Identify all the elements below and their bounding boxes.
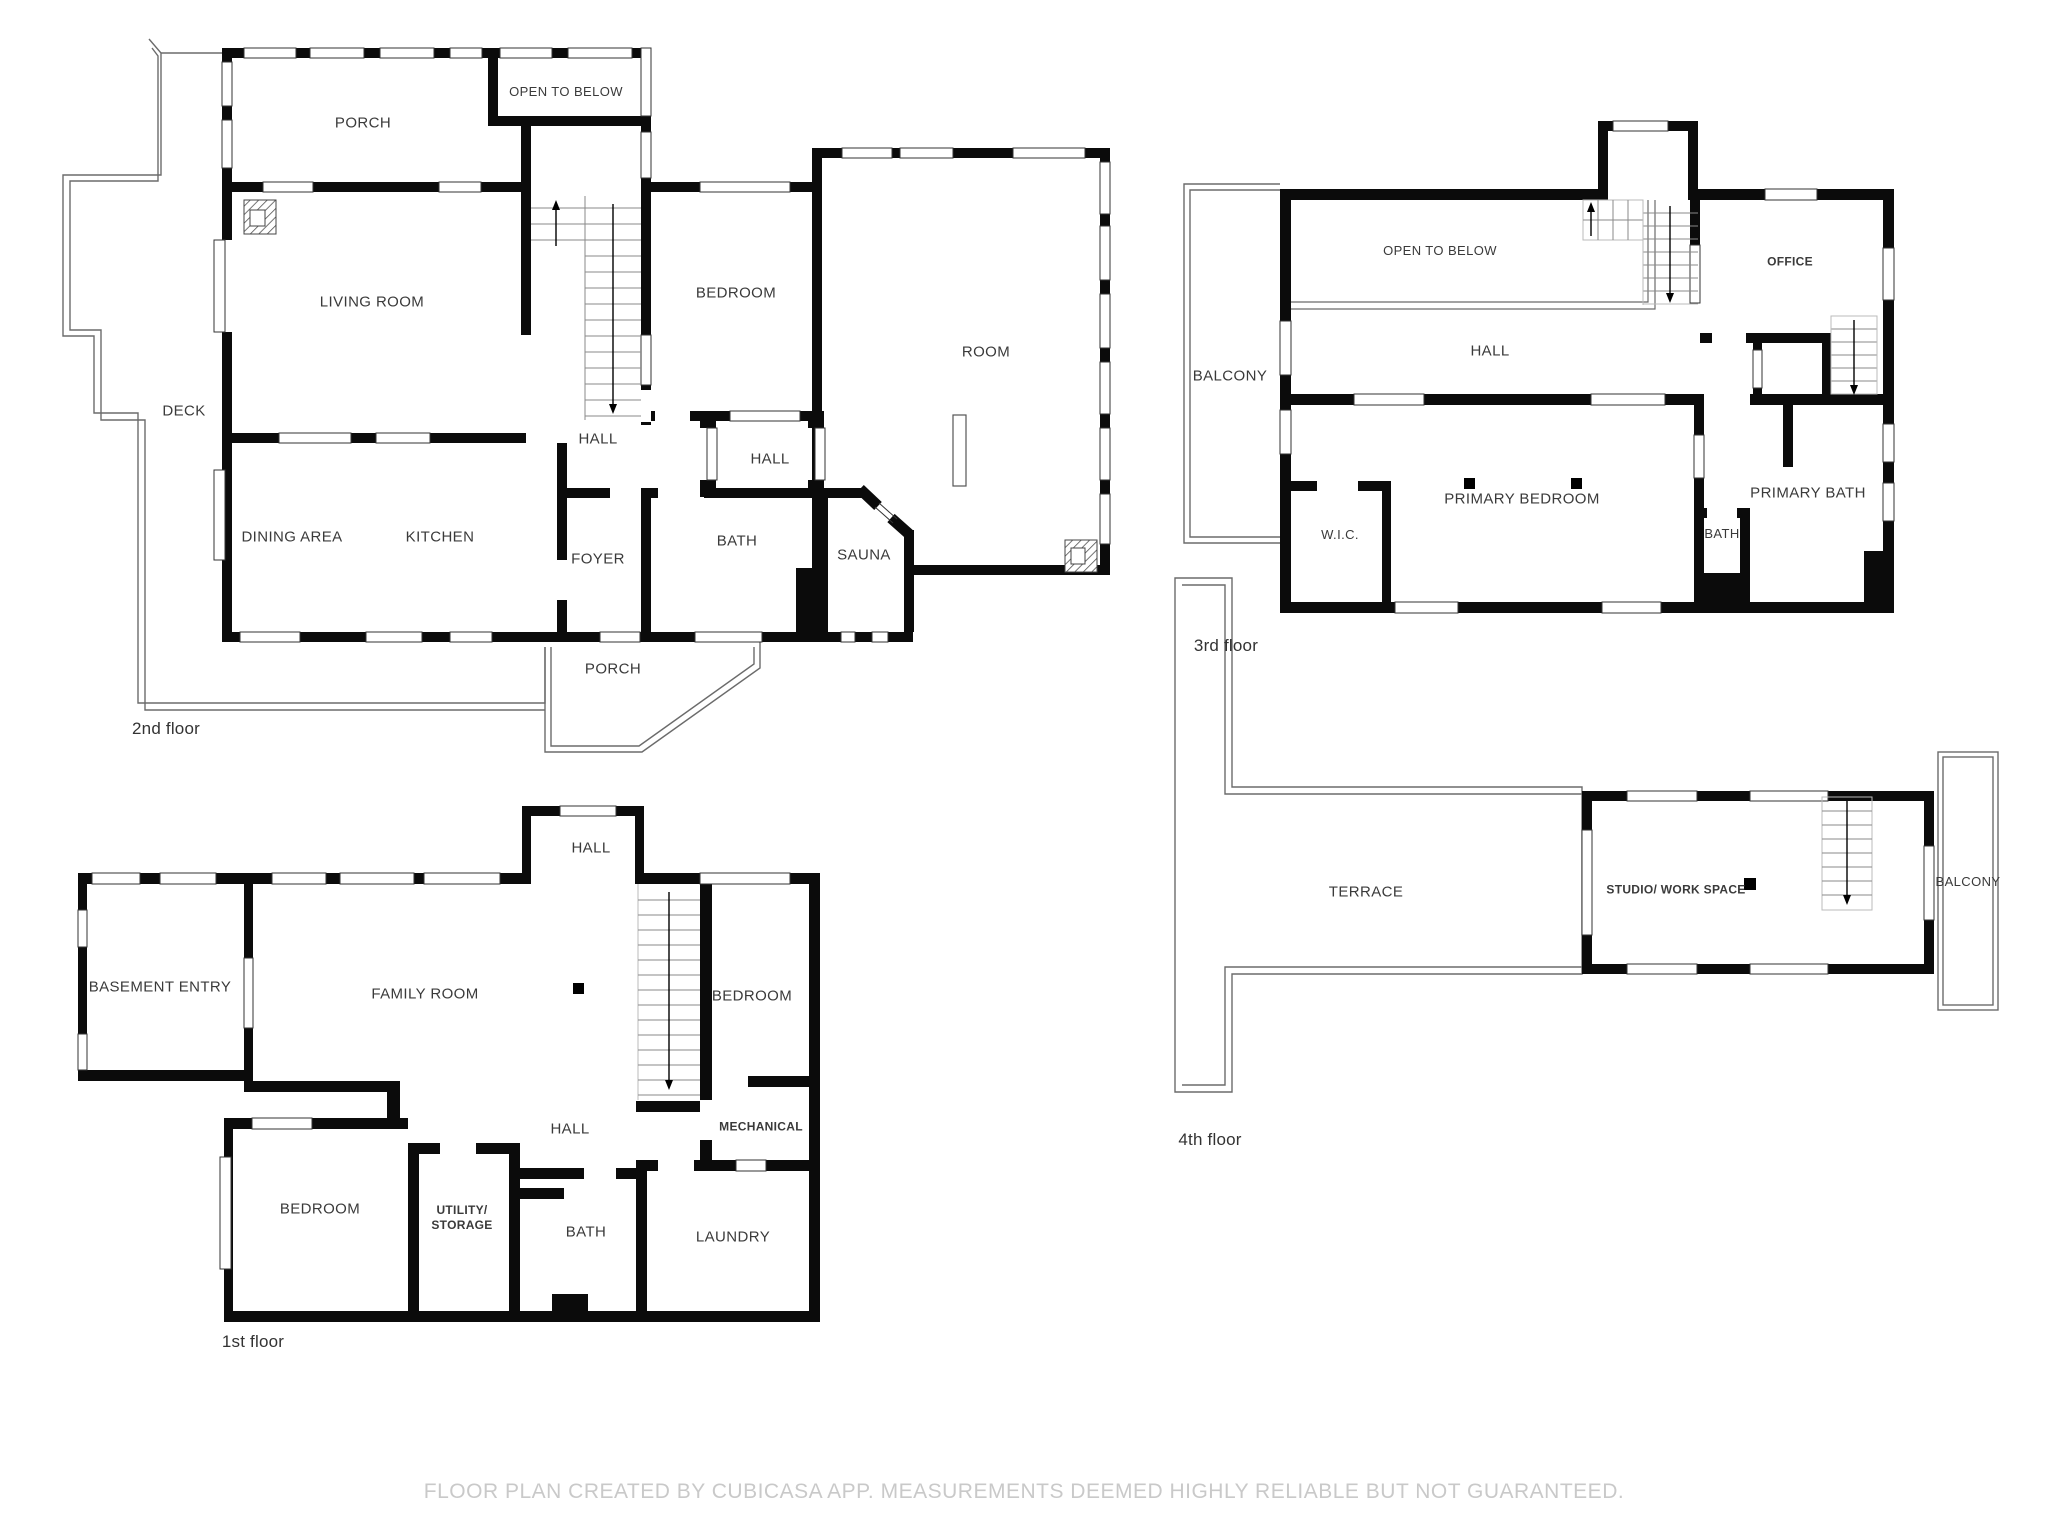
stairs-down-arrow-icon [1850,320,1858,395]
room-label-basement-entry: BASEMENT ENTRY [89,979,232,998]
room-label-primary-bath: PRIMARY BATH [1750,485,1866,504]
room-label-bedroom-1f-left: BEDROOM [280,1201,360,1220]
room-label-mechanical: MECHANICAL [719,1120,803,1135]
room-label-room: ROOM [962,344,1010,363]
floor-3rd-geometry [1184,121,1894,613]
porch-outline [545,642,760,752]
room-label-living-room: LIVING ROOM [320,294,424,313]
room-label-sauna: SAUNA [837,547,891,566]
room-label-balcony-4f: BALCONY [1936,874,2001,890]
floor-1st-doors [700,1100,712,1140]
room-label-hall-3f: HALL [1470,343,1509,362]
chimney-icon [244,200,276,234]
room-label-kitchen: KITCHEN [406,529,475,548]
stairs-down-arrow-icon [1666,206,1674,303]
room-label-utility-storage: UTILITY/ STORAGE [431,1203,492,1233]
room-label-bath-1f: BATH [566,1224,607,1243]
floor-name-3rd: 3rd floor [1194,636,1258,656]
footer-disclaimer: FLOOR PLAN CREATED BY CUBICASA APP. MEAS… [0,1480,2048,1504]
floor-name-1st: 1st floor [222,1332,284,1352]
floorplan-canvas: PORCH OPEN TO BELOW LIVING ROOM DECK BED… [0,0,2048,1536]
room-label-family-room: FAMILY ROOM [371,986,478,1005]
stairs-up-arrow-icon [552,200,560,246]
room-label-laundry: LAUNDRY [696,1229,770,1248]
stairs-up-arrow-icon [1587,202,1595,236]
room-label-hall-2f: HALL [578,431,617,450]
room-label-bath-2f: BATH [717,533,758,552]
post-marker [1464,478,1475,489]
floor-3rd-stairs [1583,200,1877,394]
floor-name-4th: 4th floor [1178,1130,1241,1150]
room-label-foyer: FOYER [571,551,625,570]
room-label-terrace: TERRACE [1329,884,1403,903]
room-label-porch-top: PORCH [335,115,391,134]
floor-2nd-stairs [531,196,641,420]
room-label-open-to-below-2f: OPEN TO BELOW [509,84,623,100]
floor-4th-geometry [1175,578,1998,1092]
sauna-diagonal-wall [860,489,909,534]
room-label-balcony-3f: BALCONY [1193,368,1268,387]
post-marker [573,983,584,994]
room-label-primary-bedroom: PRIMARY BEDROOM [1444,491,1599,510]
post-marker [1744,878,1756,890]
room-label-bedroom-2f: BEDROOM [696,285,776,304]
island-fixture [953,415,966,486]
floor-name-2nd: 2nd floor [132,719,200,739]
room-label-wic: W.I.C. [1321,527,1359,543]
deck-outline [63,39,760,752]
post-marker [1571,478,1582,489]
room-label-hall-small-2f: HALL [750,451,789,470]
room-label-bedroom-1f-right: BEDROOM [712,988,792,1007]
floorplan-svg [0,0,2048,1536]
room-label-hall-top-1f: HALL [571,840,610,859]
floor-2nd-geometry [63,39,1110,752]
room-label-office: OFFICE [1767,255,1813,270]
room-label-bath-3f: BATH [1704,526,1739,542]
room-label-open-to-below-3f: OPEN TO BELOW [1383,243,1497,259]
stairs-down-arrow-icon [609,204,617,414]
stairs-down-arrow-icon [665,892,673,1090]
room-label-deck: DECK [162,403,205,422]
chimney-icon [1065,540,1097,572]
balcony-outline [1184,184,1280,543]
room-label-hall-mid-1f: HALL [550,1121,589,1140]
room-label-studio-work-space: STUDIO/ WORK SPACE [1606,883,1745,898]
room-label-dining-area: DINING AREA [241,529,342,548]
room-label-porch-bottom: PORCH [585,661,641,680]
